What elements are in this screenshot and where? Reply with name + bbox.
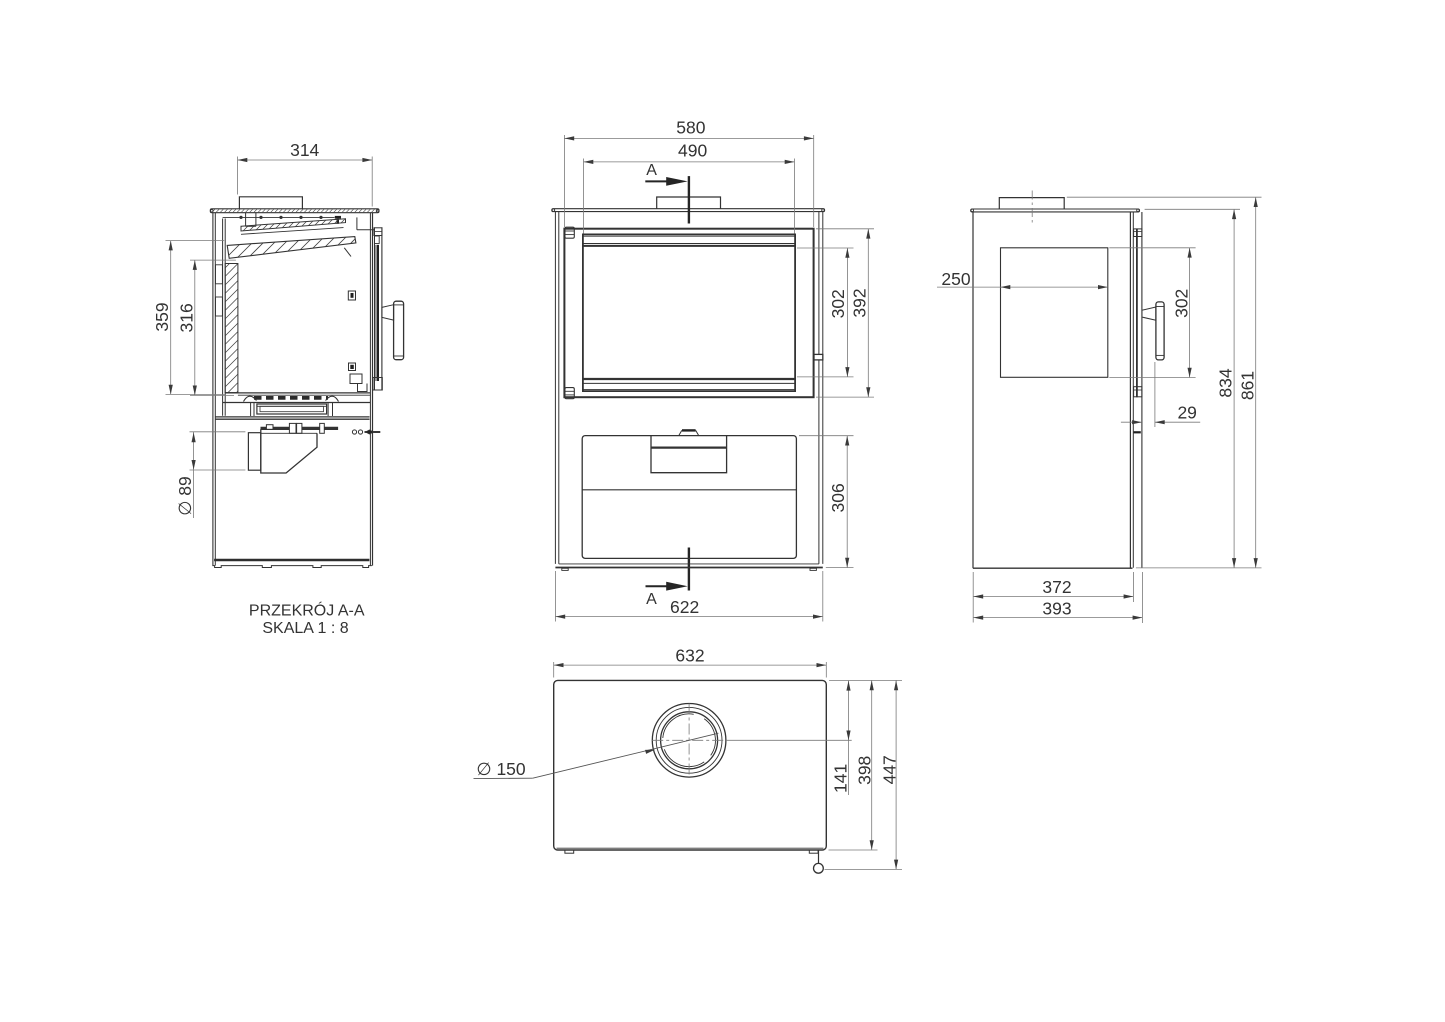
svg-text:314: 314 — [290, 140, 319, 160]
svg-text:PRZEKRÓJ A-A: PRZEKRÓJ A-A — [249, 601, 365, 620]
svg-text:490: 490 — [678, 141, 707, 161]
svg-text:393: 393 — [1042, 598, 1071, 618]
svg-text:372: 372 — [1042, 577, 1071, 597]
svg-text:632: 632 — [675, 646, 704, 666]
svg-text:29: 29 — [1177, 403, 1196, 423]
svg-text:316: 316 — [177, 303, 197, 332]
svg-text:∅ 89: ∅ 89 — [175, 476, 195, 516]
svg-text:A: A — [646, 591, 657, 608]
svg-text:SKALA 1 : 8: SKALA 1 : 8 — [262, 620, 348, 637]
svg-text:580: 580 — [676, 118, 705, 138]
svg-text:141: 141 — [831, 764, 851, 793]
svg-text:398: 398 — [854, 756, 874, 785]
svg-text:392: 392 — [850, 288, 870, 317]
svg-text:306: 306 — [828, 483, 848, 512]
svg-text:302: 302 — [1171, 289, 1191, 318]
svg-text:447: 447 — [879, 755, 899, 784]
svg-text:359: 359 — [152, 302, 172, 331]
svg-text:861: 861 — [1238, 371, 1258, 400]
svg-text:A: A — [646, 162, 657, 179]
svg-text:∅ 150: ∅ 150 — [476, 759, 526, 779]
svg-text:622: 622 — [670, 597, 699, 617]
svg-text:250: 250 — [941, 269, 970, 289]
svg-text:302: 302 — [828, 289, 848, 318]
svg-text:834: 834 — [1216, 368, 1236, 397]
